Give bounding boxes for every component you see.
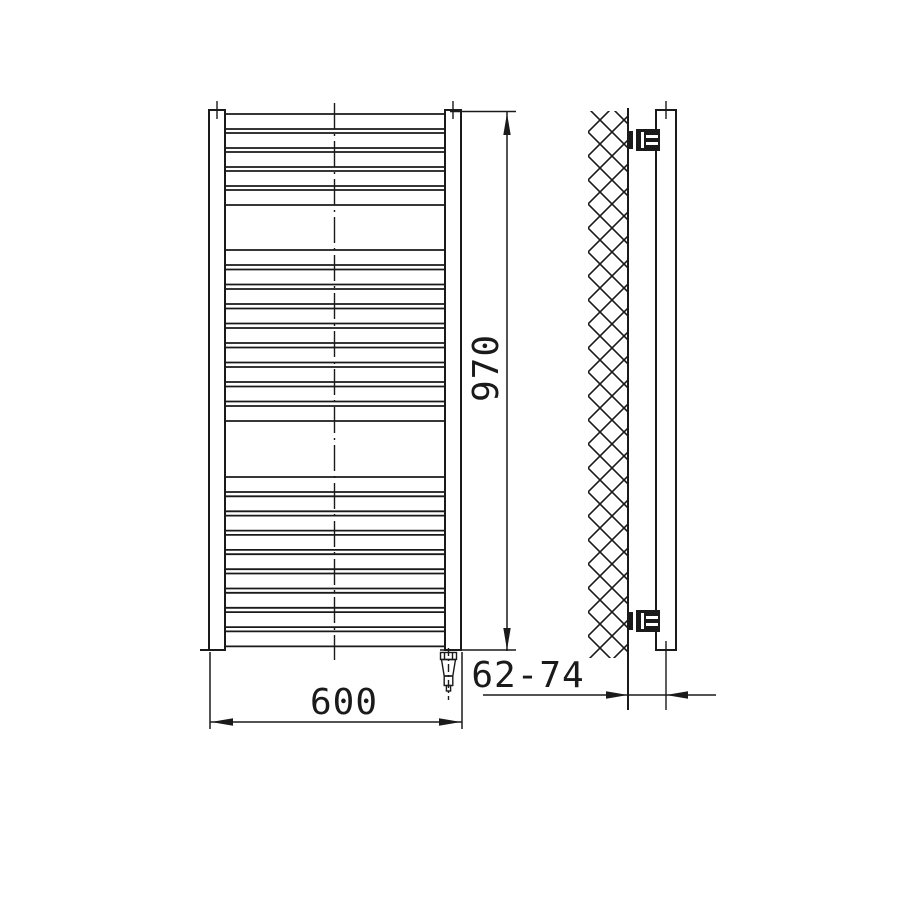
wall-hatch	[588, 111, 628, 658]
height-dimension-label: 970	[466, 334, 507, 402]
width-dimension-label: 600	[310, 682, 378, 723]
wall-distance-label: 62-74	[471, 655, 584, 696]
drawing-background	[0, 0, 900, 900]
technical-drawing: 600 970 62-74	[0, 0, 900, 900]
